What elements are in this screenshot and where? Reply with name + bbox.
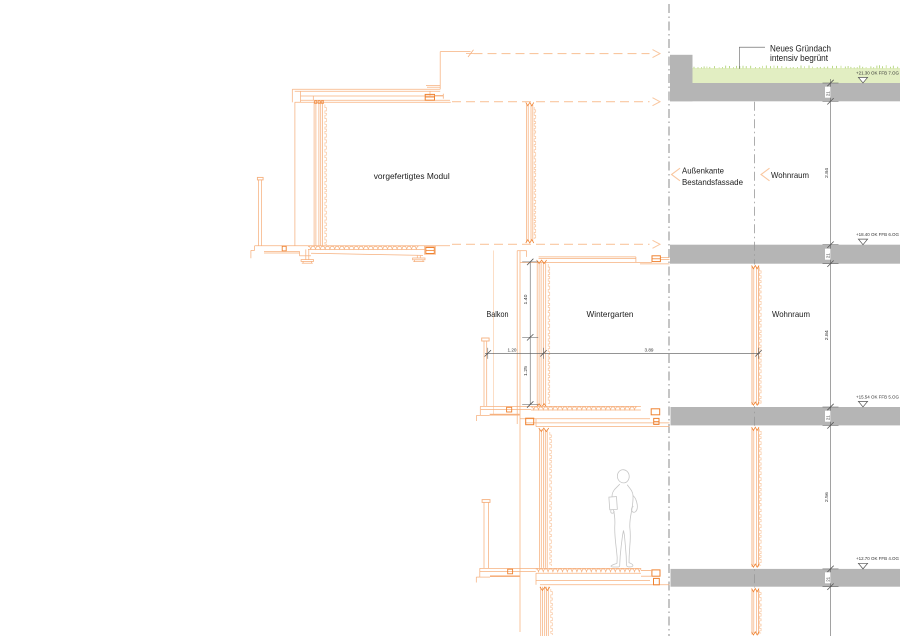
svg-text:Bestandsfassade: Bestandsfassade (682, 177, 743, 187)
svg-text:2.84: 2.84 (824, 330, 829, 341)
svg-text:Wohnraum: Wohnraum (772, 309, 810, 319)
svg-text:21: 21 (825, 253, 830, 258)
svg-text:Außenkante: Außenkante (682, 166, 724, 176)
svg-text:1.20: 1.20 (508, 347, 518, 352)
svg-text:+21.30 OK FFB 7.OG: +21.30 OK FFB 7.OG (856, 70, 899, 75)
svg-text:2.84: 2.84 (824, 167, 829, 178)
svg-text:21: 21 (825, 415, 830, 420)
svg-text:+12.70 OK FFB 4.OG: +12.70 OK FFB 4.OG (856, 556, 899, 561)
svg-text:+15.54 OK FFB 5.OG: +15.54 OK FFB 5.OG (856, 394, 899, 399)
svg-text:2.56: 2.56 (824, 491, 829, 502)
svg-text:Neues Gründach: Neues Gründach (770, 43, 831, 53)
svg-text:intensiv begrünt: intensiv begrünt (770, 53, 828, 63)
svg-text:21: 21 (825, 576, 830, 581)
svg-text:Wohnraum: Wohnraum (771, 170, 809, 180)
svg-text:1.25: 1.25 (523, 365, 528, 376)
svg-text:vorgefertigtes Modul: vorgefertigtes Modul (374, 171, 450, 181)
svg-text:21: 21 (825, 91, 830, 96)
svg-text:Balkon: Balkon (487, 309, 509, 319)
svg-text:3.89: 3.89 (645, 347, 655, 352)
svg-text:Wintergarten: Wintergarten (587, 309, 634, 319)
svg-text:1.40: 1.40 (523, 294, 528, 305)
svg-text:+18.40 OK FFB 6.OG: +18.40 OK FFB 6.OG (856, 232, 899, 237)
